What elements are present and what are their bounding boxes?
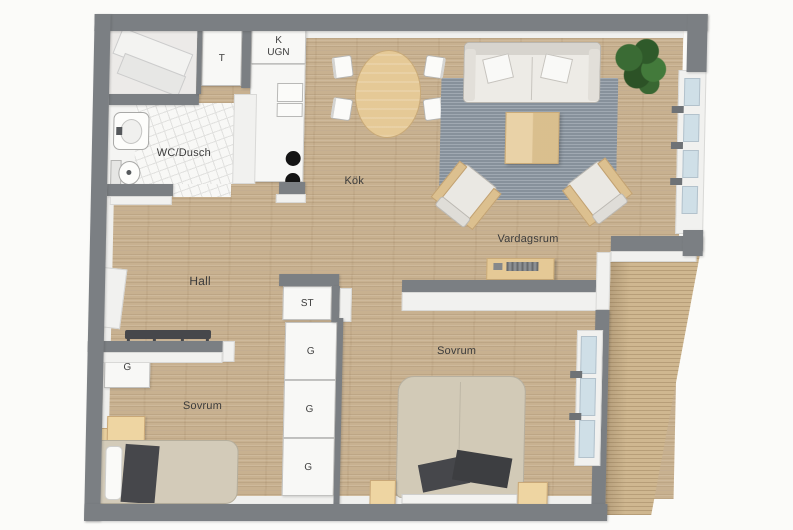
sofa-armrest [588, 49, 600, 101]
window-pane [682, 150, 699, 178]
kitchen-sink-2 [277, 103, 303, 117]
nightstand [107, 416, 146, 442]
dryer-closet-label: T [219, 53, 225, 64]
hall-bench [125, 330, 211, 339]
balcony-deck [605, 238, 703, 515]
nightstand [369, 480, 396, 506]
wall-south [84, 504, 607, 521]
room-label-bedroom-small: Sovrum [172, 399, 232, 413]
kitchen-sink [277, 83, 303, 102]
wall-bathroom-kitchen-face [232, 94, 257, 184]
wall-bedroom-large-north-face [401, 292, 601, 311]
sofa-pillow [482, 53, 514, 84]
window-pane [684, 78, 701, 106]
window-mullion [569, 413, 581, 420]
room-label-living-room: Vardagsrum [488, 232, 568, 246]
wall-bathroom-south [107, 184, 173, 196]
bed-blanket-dark [121, 444, 160, 504]
wardrobe-middle: G [283, 380, 336, 438]
wardrobe-small-bedroom-label: G [123, 362, 131, 373]
double-bed [393, 376, 528, 506]
sofa-armrest [464, 49, 476, 101]
wall-kitchen-stub [279, 182, 305, 194]
doorway-jamb-large-bedroom [339, 288, 352, 322]
single-bed [99, 440, 238, 504]
window-pane [682, 186, 699, 214]
wardrobe-top-label: G [307, 346, 315, 357]
wall-kitchen-stub-face [276, 194, 306, 203]
window-pane [578, 420, 595, 458]
room-label-bedroom-large: Sovrum [427, 344, 487, 358]
oven-label: UGN [267, 47, 289, 59]
wardrobe-bottom-label: G [304, 462, 312, 473]
dining-chair [330, 97, 353, 122]
fridge-label: K [275, 35, 282, 47]
sideboard [486, 258, 554, 280]
doorway-jamb-small-bedroom [222, 341, 234, 362]
wall-north [94, 14, 707, 31]
coffee-table [505, 112, 560, 164]
bathroom-sink [113, 112, 150, 150]
window-pane [580, 336, 597, 374]
wall-east-north [686, 14, 707, 72]
wall-entry-bathroom [109, 94, 199, 105]
sofa [463, 42, 601, 103]
window-mullion [670, 178, 682, 185]
toilet-flush-icon [126, 170, 131, 175]
potted-plant-icon [612, 38, 667, 94]
bathroom-door-threshold [173, 184, 231, 197]
cleaning-closet: ST [282, 286, 332, 320]
window-mullion [570, 371, 582, 378]
bed-base [401, 494, 517, 504]
kitchen-counter [248, 64, 305, 182]
sofa-pillow [540, 53, 573, 83]
wall-east-corner [683, 230, 704, 256]
wall-hall-bedroom-small-face [90, 352, 222, 363]
fridge-oven-cabinet: K UGN [251, 30, 307, 64]
sideboard-item [493, 263, 502, 270]
wall-closet-kitchen [241, 28, 251, 88]
sofa-seat-divider [531, 57, 533, 100]
wall-bedroom-large-north [402, 280, 596, 292]
sink-basin [120, 119, 143, 144]
cleaning-closet-label: ST [301, 298, 314, 309]
wardrobe-middle-label: G [305, 404, 313, 415]
wardrobe-top: G [284, 322, 337, 380]
faucet-icon [116, 127, 122, 135]
sideboard-item-2 [506, 262, 538, 271]
wall-hall-bedroom-small [88, 341, 228, 352]
dining-chair [331, 55, 353, 80]
dryer-closet: T [201, 30, 242, 86]
wall-step-side-face [596, 252, 611, 310]
stove-burner-icon [286, 151, 301, 166]
window-pane [683, 114, 700, 142]
bed-pillow [105, 446, 123, 500]
bathroom-shower-tiles [134, 103, 236, 184]
sofa-backrest [465, 43, 600, 55]
window-mullion [671, 142, 683, 149]
window-pane [579, 378, 596, 416]
wall-st-north [279, 274, 339, 286]
room-label-bathroom: WC/Dusch [142, 146, 226, 160]
dining-chair [423, 55, 446, 80]
room-label-hall: Hall [180, 273, 220, 288]
floorplan-canvas: WC/Dusch T K UGN Kök [0, 0, 793, 530]
window-mullion [672, 106, 684, 113]
wall-bathroom-south-face [110, 196, 172, 205]
room-label-kitchen: Kök [334, 174, 374, 188]
wardrobe-bottom: G [282, 438, 335, 496]
apartment-plan: WC/Dusch T K UGN Kök [0, 0, 793, 530]
